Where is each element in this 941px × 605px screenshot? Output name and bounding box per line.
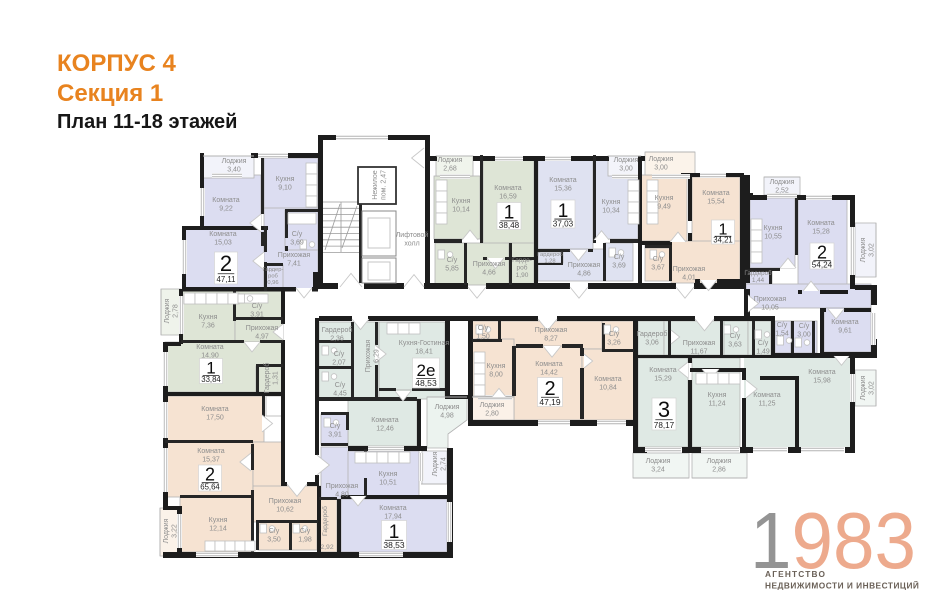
svg-text:Кухня11,24: Кухня11,24 <box>708 392 727 408</box>
svg-text:2е: 2е <box>417 361 436 380</box>
svg-text:С/у3,69: С/у3,69 <box>290 231 304 247</box>
svg-text:38,53: 38,53 <box>383 540 405 550</box>
svg-text:С/у3,63: С/у3,63 <box>728 333 742 349</box>
svg-text:Секция 1: Секция 1 <box>57 80 163 107</box>
svg-text:С/у3,26: С/у3,26 <box>607 331 621 347</box>
svg-text:Кухня9,49: Кухня9,49 <box>655 195 674 211</box>
svg-text:С/у4,45: С/у4,45 <box>333 382 347 398</box>
svg-text:Кухня7,36: Кухня7,36 <box>199 314 218 330</box>
svg-text:С/у3,50: С/у3,50 <box>267 528 281 544</box>
svg-text:АГЕНТСТВО: АГЕНТСТВО <box>765 569 826 579</box>
svg-text:Кухня12,14: Кухня12,14 <box>209 517 228 533</box>
svg-text:НЕДВИЖИМОСТИ И ИНВЕСТИЦИЙ: НЕДВИЖИМОСТИ И ИНВЕСТИЦИЙ <box>765 580 919 591</box>
svg-text:С/у3,91: С/у3,91 <box>250 303 264 319</box>
svg-text:78,17: 78,17 <box>654 421 675 430</box>
svg-text:54,24: 54,24 <box>812 260 833 269</box>
svg-text:Кухня10,51: Кухня10,51 <box>379 471 398 487</box>
svg-text:33,84: 33,84 <box>201 375 221 384</box>
svg-text:С/у5,85: С/у5,85 <box>445 257 459 273</box>
svg-text:С/у1,50: С/у1,50 <box>476 325 490 341</box>
svg-text:2: 2 <box>220 251 232 276</box>
svg-text:48,53: 48,53 <box>415 378 437 388</box>
svg-text:37,03: 37,03 <box>553 219 574 228</box>
svg-text:С/у3,67: С/у3,67 <box>651 256 665 272</box>
svg-text:2,92: 2,92 <box>320 544 333 551</box>
svg-text:План 11-18 этажей: План 11-18 этажей <box>57 111 237 133</box>
svg-text:С/у3,69: С/у3,69 <box>612 254 626 270</box>
svg-text:34,21: 34,21 <box>713 236 733 245</box>
svg-text:38,48: 38,48 <box>499 221 520 230</box>
svg-text:С/у2,07: С/у2,07 <box>332 351 346 367</box>
svg-text:С/у1,54: С/у1,54 <box>775 322 789 338</box>
svg-text:65,64: 65,64 <box>200 482 220 491</box>
svg-text:47,19: 47,19 <box>539 397 561 407</box>
svg-text:С/у1,49: С/у1,49 <box>756 340 770 356</box>
svg-text:Кухня8,00: Кухня8,00 <box>487 363 506 379</box>
svg-text:Нежилоепом. 2,47: Нежилоепом. 2,47 <box>372 170 388 200</box>
svg-text:Кухня10,34: Кухня10,34 <box>602 199 621 215</box>
svg-text:3: 3 <box>658 397 670 422</box>
svg-text:47,11: 47,11 <box>217 275 236 284</box>
svg-text:Гардероб: Гардероб <box>321 506 329 536</box>
svg-text:КОРПУС 4: КОРПУС 4 <box>57 50 177 77</box>
svg-text:Кухня9,10: Кухня9,10 <box>276 176 295 192</box>
svg-text:С/у1,98: С/у1,98 <box>298 528 312 544</box>
svg-text:С/у3,91: С/у3,91 <box>328 423 342 439</box>
svg-text:С/у3,00: С/у3,00 <box>797 323 811 339</box>
svg-text:Кухня10,55: Кухня10,55 <box>764 225 783 241</box>
svg-text:Кухня10,14: Кухня10,14 <box>452 198 471 214</box>
